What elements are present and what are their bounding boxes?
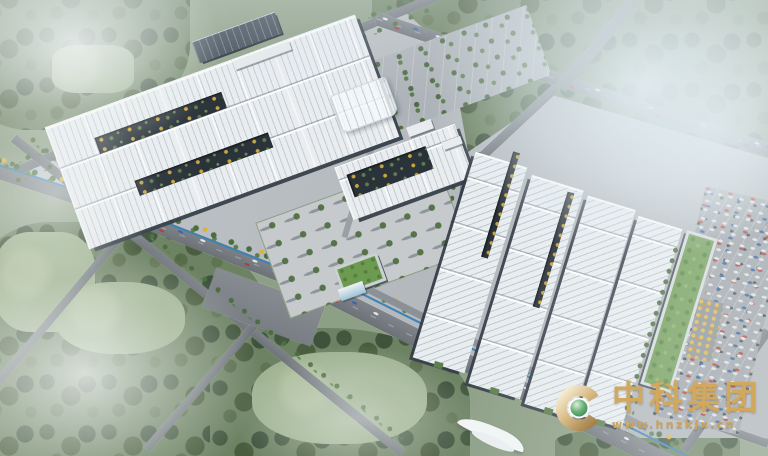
- watermark-text: 中科集团 www.hnzkjx.cn: [612, 381, 762, 431]
- company-name: 中科集团: [612, 381, 762, 414]
- company-logo-icon: [552, 381, 606, 435]
- hedge-block: [489, 387, 499, 395]
- courtyard-slot: [94, 92, 227, 154]
- courtyard-slot: [134, 132, 273, 196]
- meadow-top-left: [52, 45, 134, 93]
- watermark: 中科集团 www.hnzkjx.cn: [552, 381, 762, 435]
- company-website: www.hnzkjx.cn: [612, 418, 762, 431]
- aerial-rendering: 中科集团 www.hnzkjx.cn: [0, 0, 768, 456]
